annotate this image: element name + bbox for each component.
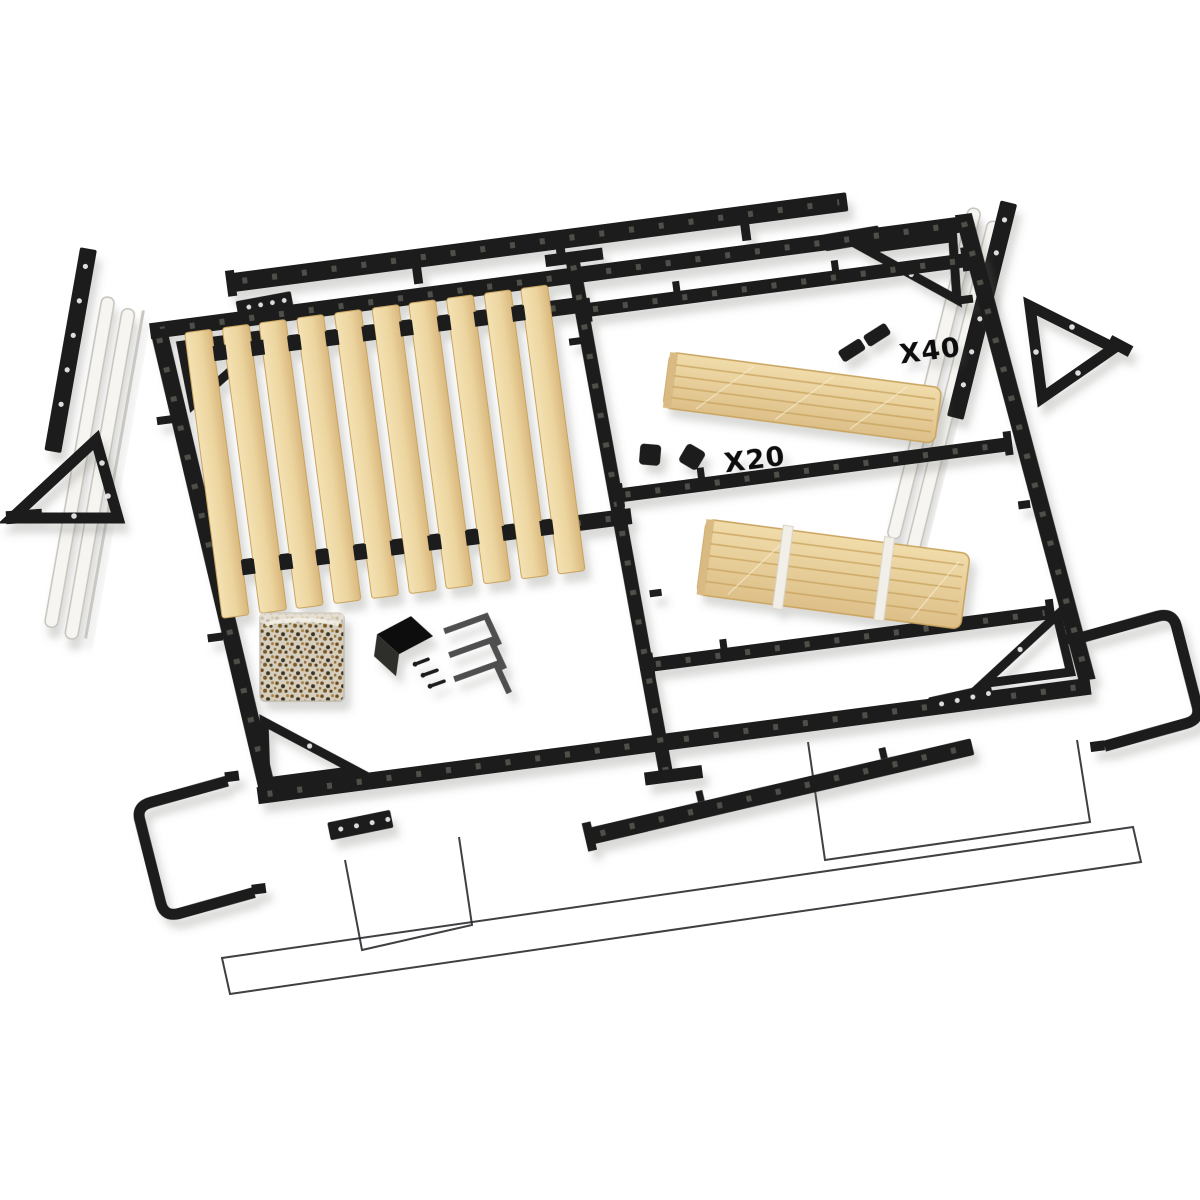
bolt-tab — [960, 295, 973, 304]
background — [0, 0, 1200, 1200]
screw-bag — [260, 613, 344, 701]
leg-foot — [224, 771, 239, 783]
leg-foot — [1090, 740, 1105, 752]
bolt-tab — [831, 260, 839, 272]
bolt-tab — [697, 467, 705, 479]
bolt-tab — [1018, 500, 1031, 509]
product-image: X40 X20 — [0, 0, 1200, 1200]
exploded-view-canvas: X40 X20 — [0, 0, 1200, 1200]
bolt-tab — [672, 281, 680, 293]
bolt-tab — [719, 639, 727, 651]
square-cap-icon — [639, 443, 662, 466]
bracket-foot — [6, 509, 43, 524]
leg-foot — [1062, 633, 1077, 645]
leg-foot — [251, 883, 266, 895]
